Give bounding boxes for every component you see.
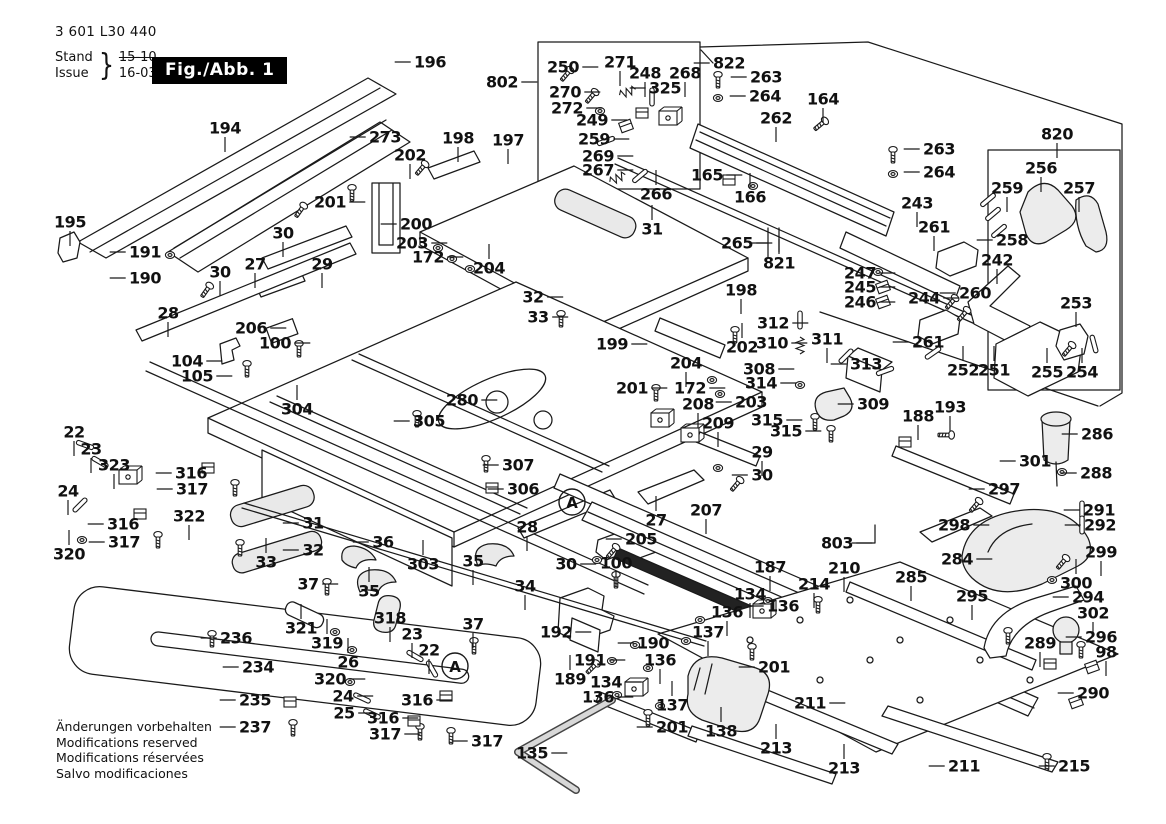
part-label: 288 [1080, 464, 1112, 483]
part-label: 164 [807, 90, 839, 109]
part-label: 316 [107, 515, 139, 534]
part-label: 27 [244, 255, 265, 274]
part-label: 263 [750, 68, 782, 87]
part-label: 194 [209, 119, 241, 138]
part-label: 253 [1060, 294, 1092, 313]
part-label: 211 [948, 757, 980, 776]
part-label: 191 [574, 651, 606, 670]
part-label: 320 [53, 545, 85, 564]
part-label: 210 [828, 559, 860, 578]
part-label: 242 [981, 251, 1013, 270]
part-label: 27 [645, 511, 666, 530]
part-label: 284 [941, 550, 973, 569]
part-label: 264 [749, 87, 781, 106]
part-label: 273 [369, 128, 401, 147]
part-label: 262 [760, 109, 792, 128]
part-label: 189 [554, 670, 586, 689]
part-label: 285 [895, 568, 927, 587]
part-label: 261 [918, 218, 950, 237]
part-label: 166 [734, 188, 766, 207]
part-label: 235 [239, 691, 271, 710]
part-label: 259 [991, 179, 1023, 198]
part-label: 136 [582, 688, 614, 707]
part-label: 263 [923, 140, 955, 159]
part-label: 25 [333, 704, 355, 723]
part-label: 260 [959, 284, 991, 303]
part-label: 286 [1081, 425, 1113, 444]
part-label: 203 [735, 393, 767, 412]
part-label: 33 [527, 308, 548, 327]
part-label: 32 [522, 288, 543, 307]
part-label: 37 [462, 615, 483, 634]
part-label: 207 [690, 501, 722, 520]
part-label: 208 [682, 395, 714, 414]
part-label: 211 [794, 694, 826, 713]
part-label: 243 [901, 194, 933, 213]
exploded-diagram: 1941962732021981972012003020317220427293… [0, 0, 1166, 824]
part-label: 236 [220, 629, 252, 648]
part-label: 202 [726, 338, 758, 357]
part-label: 201 [656, 718, 688, 737]
part-label: 30 [272, 224, 294, 243]
part-label: 258 [996, 231, 1028, 250]
part-label: 311 [811, 330, 843, 349]
part-label: 234 [242, 658, 274, 677]
part-label: 198 [442, 129, 474, 148]
part-label: 135 [516, 744, 548, 763]
part-label: 302 [1077, 604, 1109, 623]
part-label: 209 [702, 414, 734, 433]
part-label: 138 [705, 722, 737, 741]
part-label: 29 [751, 443, 773, 462]
part-label: 301 [1019, 452, 1051, 471]
part-label: 200 [400, 215, 432, 234]
part-label: 191 [129, 243, 161, 262]
part-label: 134 [734, 585, 766, 604]
part-label: 256 [1025, 159, 1057, 178]
part-label: 254 [1066, 363, 1098, 382]
part-label: 136 [711, 603, 743, 622]
part-label: 187 [754, 558, 786, 577]
part-label: 100 [259, 334, 291, 353]
part-label: 251 [978, 361, 1010, 380]
part-label: 317 [369, 725, 401, 744]
part-label: 36 [372, 533, 394, 552]
part-label: 310 [756, 334, 788, 353]
part-label: 98 [1095, 643, 1117, 662]
part-label: 136 [767, 597, 799, 616]
part-label: 197 [492, 131, 524, 150]
part-label: 820 [1041, 125, 1073, 144]
part-label: 290 [1077, 684, 1109, 703]
part-label: 196 [414, 53, 446, 72]
part-label: 252 [947, 361, 979, 380]
part-label: 37 [297, 575, 318, 594]
part-label: 136 [644, 651, 676, 670]
part-label: 28 [516, 518, 538, 537]
part-label: 199 [596, 335, 628, 354]
page: 3 601 L30 440 Stand Issue } 15-10 16-03-… [0, 0, 1166, 824]
part-label: 314 [745, 374, 777, 393]
part-label: 213 [760, 739, 792, 758]
part-label: 34 [514, 577, 536, 596]
part-label: 803 [821, 534, 853, 553]
part-label: 137 [656, 696, 688, 715]
part-label: 305 [413, 412, 445, 431]
part-label: 822 [713, 54, 745, 73]
part-label: 137 [692, 623, 724, 642]
part-label: 312 [757, 314, 789, 333]
part-label: 249 [576, 111, 608, 130]
part-label: 204 [473, 259, 505, 278]
part-label: 250 [547, 58, 579, 77]
part-label: 190 [129, 269, 161, 288]
part-label: 255 [1031, 363, 1063, 382]
part-label: 198 [725, 281, 757, 300]
part-label: 213 [828, 759, 860, 778]
part-label: 193 [934, 398, 966, 417]
part-label: 201 [616, 379, 648, 398]
part-label: 322 [173, 507, 205, 526]
part-label: 323 [98, 456, 130, 475]
part-label: 201 [758, 658, 790, 677]
part-label: 297 [988, 480, 1020, 499]
part-label: 30 [555, 555, 577, 574]
part-label: 31 [641, 220, 663, 239]
part-label: 266 [640, 185, 672, 204]
part-label: 201 [314, 193, 346, 212]
part-label: 295 [956, 587, 988, 606]
part-label: 195 [54, 213, 86, 232]
part-label: 267 [582, 161, 614, 180]
part-label: 292 [1084, 516, 1116, 535]
part-label: 304 [281, 400, 313, 419]
part-label: 29 [311, 255, 333, 274]
part-label: 306 [507, 480, 539, 499]
part-label: 32 [302, 541, 323, 560]
part-label: 165 [691, 166, 723, 185]
part-label: 192 [540, 623, 572, 642]
part-label: 35 [358, 582, 380, 601]
part-label: 244 [908, 289, 940, 308]
part-label: 204 [670, 354, 702, 373]
part-label: 317 [176, 480, 208, 499]
part-label: 35 [462, 552, 484, 571]
part-label: 188 [902, 407, 934, 426]
part-label: 264 [923, 163, 955, 182]
part-label: 105 [181, 367, 213, 386]
part-label: 303 [407, 555, 439, 574]
part-label: 313 [850, 355, 882, 374]
part-label: 202 [394, 146, 426, 165]
part-label: 33 [255, 553, 276, 572]
part-label: 315 [770, 422, 802, 441]
part-label: 28 [157, 304, 179, 323]
part-label: 319 [311, 634, 343, 653]
part-label: 30 [209, 263, 231, 282]
part-label: 307 [502, 456, 534, 475]
part-label: 298 [938, 516, 970, 535]
part-label: 100 [600, 554, 632, 573]
part-label: 172 [412, 248, 444, 267]
part-label: 280 [446, 391, 478, 410]
part-label: 30 [751, 466, 773, 485]
bracket-803 [852, 525, 875, 543]
part-label: 325 [649, 79, 681, 98]
part-label: 24 [57, 482, 79, 501]
part-label: 802 [486, 73, 518, 92]
part-label: 265 [721, 234, 753, 253]
part-label: 309 [857, 395, 889, 414]
detail-marker-label: A [566, 494, 578, 512]
part-label: 317 [471, 732, 503, 751]
detail-marker-label: A [449, 658, 461, 676]
part-label: 317 [108, 533, 140, 552]
part-label: 821 [763, 254, 795, 273]
part-label: 215 [1058, 757, 1090, 776]
part-label: 299 [1085, 543, 1117, 562]
part-label: 257 [1063, 179, 1095, 198]
part-label: 261 [912, 333, 944, 352]
part-label: 289 [1024, 634, 1056, 653]
part-label: 31 [302, 514, 324, 533]
part-label: 214 [798, 575, 830, 594]
part-label: 22 [418, 641, 439, 660]
part-label: 205 [625, 530, 657, 549]
part-label: 246 [844, 293, 876, 312]
part-label: 237 [239, 718, 271, 737]
part-label: 316 [401, 691, 433, 710]
